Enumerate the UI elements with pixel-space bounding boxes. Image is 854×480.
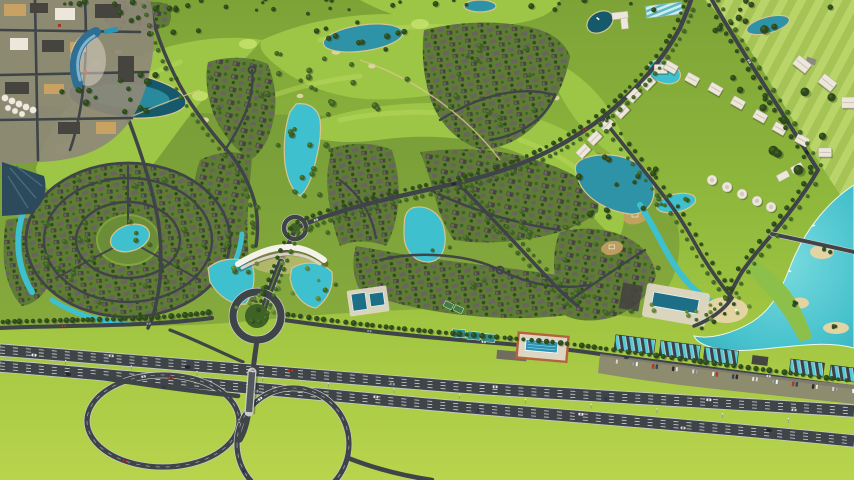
car xyxy=(251,368,254,373)
car xyxy=(390,382,395,385)
apartment-building xyxy=(819,148,833,158)
apartment-building xyxy=(842,97,854,109)
parked-car xyxy=(812,384,815,389)
clubhouse-building xyxy=(620,18,628,30)
umbrella xyxy=(735,309,737,311)
car xyxy=(791,408,796,411)
car xyxy=(766,375,771,378)
car xyxy=(475,409,480,412)
parked-car xyxy=(835,387,838,392)
parked-car xyxy=(675,367,678,372)
car xyxy=(624,356,629,359)
masterplan-render: Aerial masterplan rendering of a golf co… xyxy=(0,0,854,480)
car xyxy=(373,395,378,398)
overpass-deck xyxy=(249,372,252,412)
parked-car xyxy=(815,385,818,390)
car xyxy=(680,426,685,429)
car xyxy=(162,386,167,389)
parked-car xyxy=(692,369,695,374)
parked-car xyxy=(632,361,635,366)
umbrella xyxy=(721,313,723,315)
parked-car xyxy=(712,372,715,377)
parked-car xyxy=(755,377,758,382)
parked-car xyxy=(732,374,735,379)
parked-car xyxy=(615,359,618,364)
car xyxy=(492,385,497,388)
car xyxy=(146,322,151,325)
central-pools xyxy=(347,285,390,316)
car xyxy=(706,398,711,401)
parked-car xyxy=(655,364,658,369)
red-accent xyxy=(58,24,61,27)
pond xyxy=(464,0,496,12)
car xyxy=(109,354,114,357)
car xyxy=(61,325,65,327)
car xyxy=(367,330,372,333)
car xyxy=(185,365,190,368)
car xyxy=(481,341,486,344)
parked-car xyxy=(772,379,775,384)
parked-car xyxy=(652,364,655,369)
parked-car xyxy=(715,372,718,377)
parked-car xyxy=(832,387,835,392)
parked-car xyxy=(672,366,675,371)
parked-car xyxy=(775,380,778,385)
car xyxy=(31,354,36,357)
parked-car xyxy=(752,377,755,382)
parked-car xyxy=(795,382,798,387)
parked-car xyxy=(635,362,638,367)
parked-car xyxy=(735,375,738,380)
car xyxy=(253,389,258,392)
parked-car xyxy=(695,370,698,375)
car xyxy=(288,369,293,372)
car xyxy=(578,413,583,416)
car xyxy=(603,397,608,400)
car xyxy=(141,375,146,378)
car xyxy=(766,429,771,432)
car xyxy=(65,373,70,376)
car xyxy=(168,376,173,379)
parked-car xyxy=(792,382,795,387)
car xyxy=(238,419,241,424)
